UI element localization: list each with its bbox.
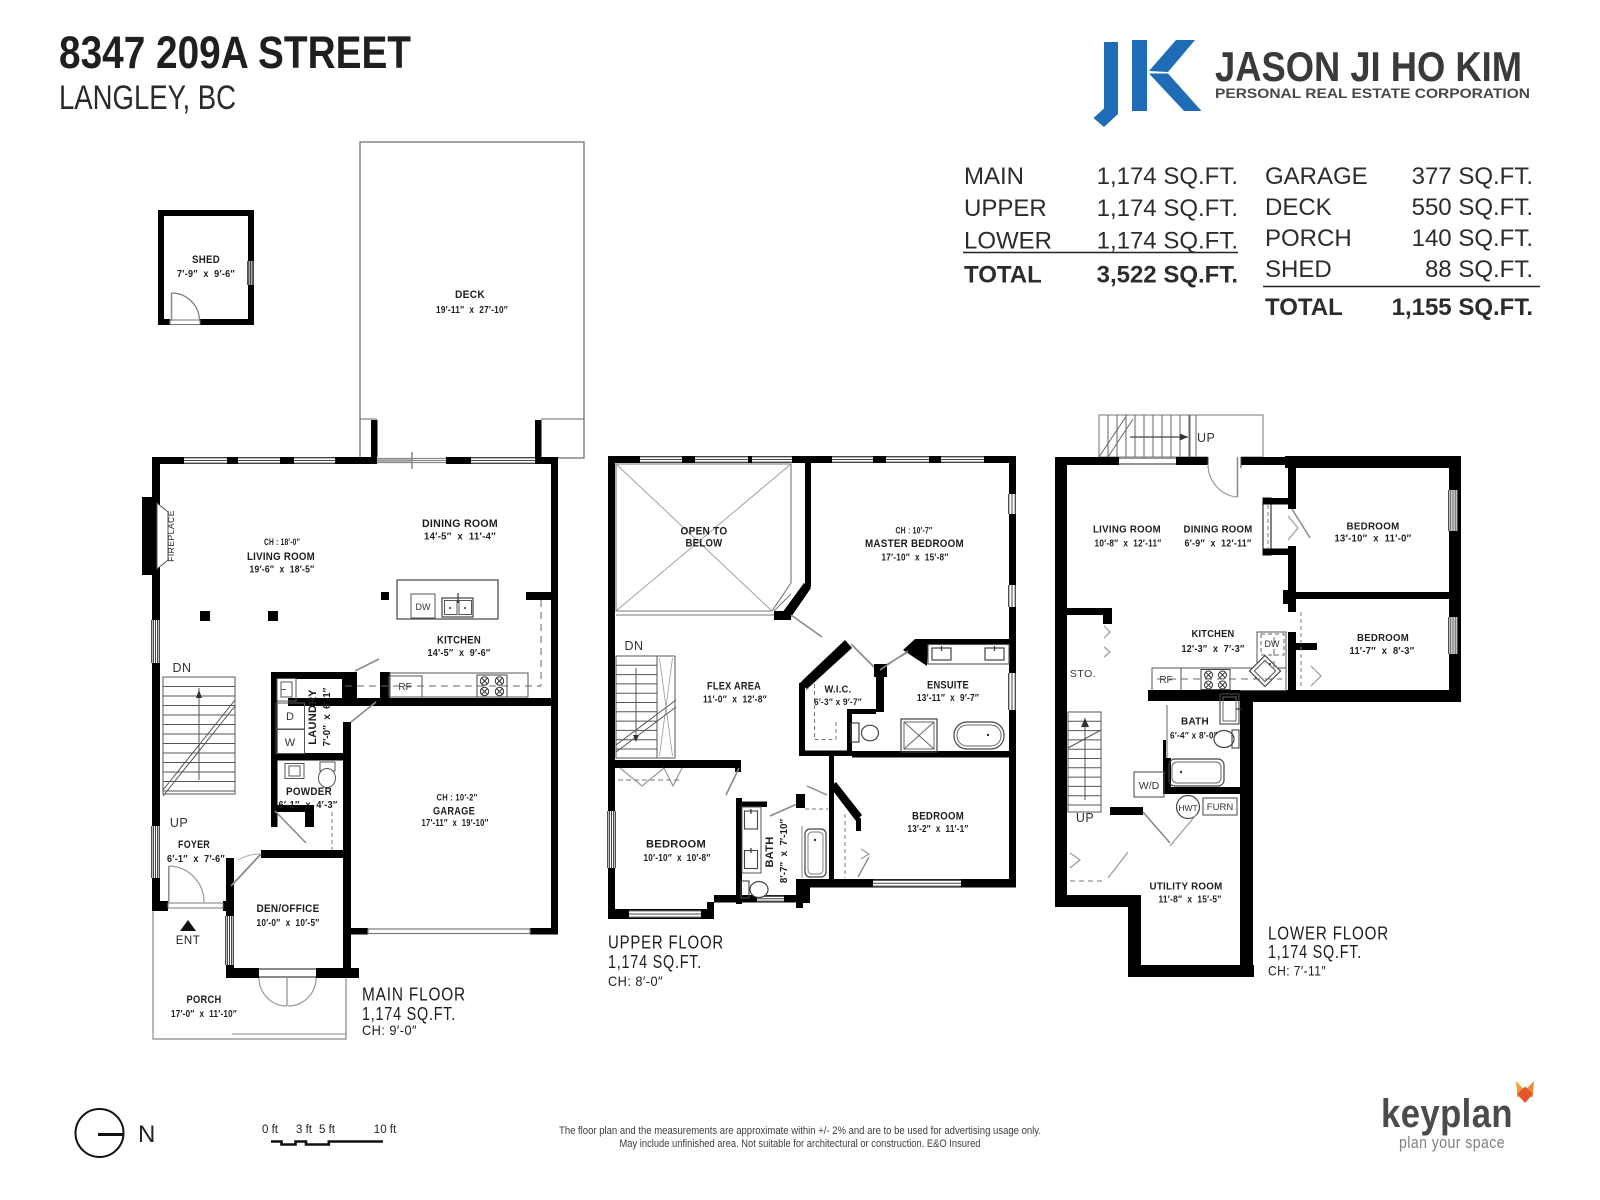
svg-text:DINING ROOM: DINING ROOM <box>422 518 498 530</box>
svg-text:1,174 SQ.FT.: 1,174 SQ.FT. <box>1097 163 1238 190</box>
svg-text:8347 209A STREET: 8347 209A STREET <box>59 27 411 78</box>
svg-text:DN: DN <box>624 639 643 653</box>
svg-text:12′-3″ x 7′-3″: 12′-3″ x 7′-3″ <box>1182 644 1245 655</box>
svg-text:19′-11″ x 27′-10″: 19′-11″ x 27′-10″ <box>436 305 508 316</box>
svg-text:11′-8″ x 15′-5″: 11′-8″ x 15′-5″ <box>1159 895 1222 906</box>
svg-text:plan your space: plan your space <box>1399 1133 1505 1152</box>
svg-text:ENT: ENT <box>176 935 201 947</box>
svg-text:CH : 10′-7″: CH : 10′-7″ <box>896 526 933 536</box>
svg-text:10′-0″ x 10′-5″: 10′-0″ x 10′-5″ <box>257 918 320 929</box>
svg-text:17′-11″ x 19′-10″: 17′-11″ x 19′-10″ <box>422 818 489 829</box>
svg-text:5 ft: 5 ft <box>319 1124 336 1136</box>
svg-text:RF: RF <box>1159 675 1172 686</box>
svg-text:KITCHEN: KITCHEN <box>437 635 481 647</box>
svg-text:KITCHEN: KITCHEN <box>1192 629 1235 640</box>
svg-text:TOTAL: TOTAL <box>964 262 1042 289</box>
svg-text:11′-0″ x 12′-8″: 11′-0″ x 12′-8″ <box>703 695 767 706</box>
svg-text:UPPER: UPPER <box>964 195 1047 222</box>
svg-text:BEDROOM: BEDROOM <box>1357 633 1409 644</box>
svg-text:7′-9″ x 9′-6″: 7′-9″ x 9′-6″ <box>177 269 235 280</box>
svg-text:GARAGE: GARAGE <box>433 806 475 818</box>
svg-text:BELOW: BELOW <box>686 538 723 550</box>
svg-text:11′-7″ x 8′-3″: 11′-7″ x 8′-3″ <box>1350 646 1415 657</box>
svg-text:377 SQ.FT.: 377 SQ.FT. <box>1412 163 1533 190</box>
svg-text:PORCH: PORCH <box>187 994 222 1006</box>
svg-text:BEDROOM: BEDROOM <box>1347 521 1400 532</box>
svg-text:10′-10″ x 10′-8″: 10′-10″ x 10′-8″ <box>644 853 711 864</box>
svg-text:LAUNDRY: LAUNDRY <box>307 689 319 745</box>
svg-text:6′-9″ x 12′-11″: 6′-9″ x 12′-11″ <box>1185 538 1252 549</box>
svg-text:FURN: FURN <box>1207 802 1234 813</box>
svg-text:10′-8″ x 12′-11″: 10′-8″ x 12′-11″ <box>1095 538 1162 549</box>
svg-text:1,174 SQ.FT.: 1,174 SQ.FT. <box>1268 941 1362 962</box>
svg-text:LIVING ROOM: LIVING ROOM <box>247 551 315 563</box>
svg-text:W/D: W/D <box>1139 780 1160 792</box>
svg-text:W.I.C.: W.I.C. <box>825 685 852 696</box>
svg-text:8′-7″ x 7′-10″: 8′-7″ x 7′-10″ <box>779 819 790 883</box>
svg-text:DECK: DECK <box>455 289 485 301</box>
svg-text:W: W <box>285 737 296 749</box>
svg-text:DEN/OFFICE: DEN/OFFICE <box>257 903 320 915</box>
svg-text:DW: DW <box>1265 639 1280 649</box>
svg-text:1,174 SQ.FT.: 1,174 SQ.FT. <box>608 951 702 972</box>
svg-text:MASTER BEDROOM: MASTER BEDROOM <box>865 538 964 550</box>
svg-text:13′-10″ x 11′-0″: 13′-10″ x 11′-0″ <box>1335 534 1412 545</box>
svg-text:RF: RF <box>398 682 411 693</box>
svg-text:17′-10″ x 15′-8″: 17′-10″ x 15′-8″ <box>882 553 949 564</box>
svg-text:ENSUITE: ENSUITE <box>927 679 969 691</box>
svg-text:PORCH: PORCH <box>1265 225 1352 252</box>
svg-text:13′-11″ x 9′-7″: 13′-11″ x 9′-7″ <box>917 693 979 704</box>
svg-text:SHED: SHED <box>1265 256 1332 283</box>
svg-text:LANGLEY, BC: LANGLEY, BC <box>59 79 236 117</box>
svg-text:PERSONAL REAL ESTATE CORPORATI: PERSONAL REAL ESTATE CORPORATION <box>1215 85 1530 101</box>
svg-text:BATH: BATH <box>764 837 776 868</box>
svg-text:CH: 8′-0″: CH: 8′-0″ <box>608 973 663 989</box>
svg-text:CH: 9′-0″: CH: 9′-0″ <box>362 1022 417 1038</box>
svg-text:POWDER: POWDER <box>286 786 332 798</box>
svg-text:1,155 SQ.FT.: 1,155 SQ.FT. <box>1392 294 1533 321</box>
svg-text:DW: DW <box>416 602 431 612</box>
svg-text:19′-6″ x 18′-5″: 19′-6″ x 18′-5″ <box>250 565 315 576</box>
svg-text:N: N <box>138 1121 155 1148</box>
svg-text:MAIN: MAIN <box>964 163 1024 190</box>
svg-text:88 SQ.FT.: 88 SQ.FT. <box>1425 256 1533 283</box>
svg-text:D: D <box>286 711 294 723</box>
svg-text:6′-1″ x 7′-6″: 6′-1″ x 7′-6″ <box>167 854 225 865</box>
svg-text:BEDROOM: BEDROOM <box>646 839 706 851</box>
svg-text:0 ft: 0 ft <box>262 1124 279 1136</box>
svg-text:CH : 18′-0″: CH : 18′-0″ <box>264 537 300 547</box>
svg-text:DECK: DECK <box>1265 194 1332 221</box>
svg-text:DINING ROOM: DINING ROOM <box>1184 524 1253 535</box>
svg-text:17′-0″ x 11′-10″: 17′-0″ x 11′-10″ <box>171 1009 237 1020</box>
svg-text:CH: 7′-11″: CH: 7′-11″ <box>1268 963 1326 979</box>
svg-text:LIVING ROOM: LIVING ROOM <box>1093 524 1161 535</box>
svg-text:CH : 10′-2″: CH : 10′-2″ <box>437 793 478 803</box>
svg-text:May include unfinished area. N: May include unfinished area. Not suitabl… <box>620 1138 981 1150</box>
svg-text:The floor plan and the measure: The floor plan and the measurements are … <box>559 1125 1041 1137</box>
svg-text:DN: DN <box>172 661 191 675</box>
svg-text:6′-3″ x 9′-7″: 6′-3″ x 9′-7″ <box>814 697 862 707</box>
svg-text:keyplan: keyplan <box>1381 1092 1513 1136</box>
svg-text:1,174 SQ.FT.: 1,174 SQ.FT. <box>1097 228 1238 255</box>
svg-text:6′-1″ x 4′-3″: 6′-1″ x 4′-3″ <box>279 800 338 811</box>
svg-text:HWT: HWT <box>1178 803 1197 813</box>
svg-text:MAIN FLOOR: MAIN FLOOR <box>362 984 466 1005</box>
svg-text:LOWER: LOWER <box>964 228 1052 255</box>
svg-text:14′-5″ x 11′-4″: 14′-5″ x 11′-4″ <box>424 532 496 543</box>
svg-text:10 ft: 10 ft <box>374 1124 397 1136</box>
svg-text:UP: UP <box>1197 431 1215 445</box>
svg-text:BEDROOM: BEDROOM <box>912 810 964 822</box>
svg-text:1,174 SQ.FT.: 1,174 SQ.FT. <box>362 1003 456 1024</box>
svg-text:FLEX AREA: FLEX AREA <box>707 681 761 693</box>
svg-text:7′-0″ x 6′-1″: 7′-0″ x 6′-1″ <box>322 687 333 746</box>
svg-text:3 ft: 3 ft <box>296 1124 313 1136</box>
svg-text:3,522 SQ.FT.: 3,522 SQ.FT. <box>1097 262 1238 289</box>
svg-text:SHED: SHED <box>192 254 220 266</box>
svg-text:GARAGE: GARAGE <box>1265 163 1368 190</box>
svg-text:BATH: BATH <box>1181 717 1209 728</box>
svg-text:13′-2″ x 11′-1″: 13′-2″ x 11′-1″ <box>908 824 969 835</box>
svg-text:1,174 SQ.FT.: 1,174 SQ.FT. <box>1097 195 1238 222</box>
svg-text:STO.: STO. <box>1070 668 1096 680</box>
svg-text:UP: UP <box>1076 811 1094 825</box>
svg-text:UTILITY ROOM: UTILITY ROOM <box>1150 882 1223 893</box>
svg-text:14′-5″ x 9′-6″: 14′-5″ x 9′-6″ <box>428 648 491 659</box>
svg-text:550 SQ.FT.: 550 SQ.FT. <box>1412 194 1533 221</box>
svg-text:TOTAL: TOTAL <box>1265 294 1343 321</box>
svg-text:UPPER FLOOR: UPPER FLOOR <box>608 932 724 953</box>
svg-text:UP: UP <box>170 816 188 830</box>
svg-text:OPEN TO: OPEN TO <box>681 526 728 538</box>
svg-text:140 SQ.FT.: 140 SQ.FT. <box>1412 225 1533 252</box>
svg-text:6′-4″ x 8′-0″: 6′-4″ x 8′-0″ <box>1170 731 1218 741</box>
svg-text:JASON JI HO KIM: JASON JI HO KIM <box>1215 43 1522 90</box>
svg-text:FOYER: FOYER <box>178 839 210 851</box>
svg-text:FIREPLACE: FIREPLACE <box>166 510 176 562</box>
